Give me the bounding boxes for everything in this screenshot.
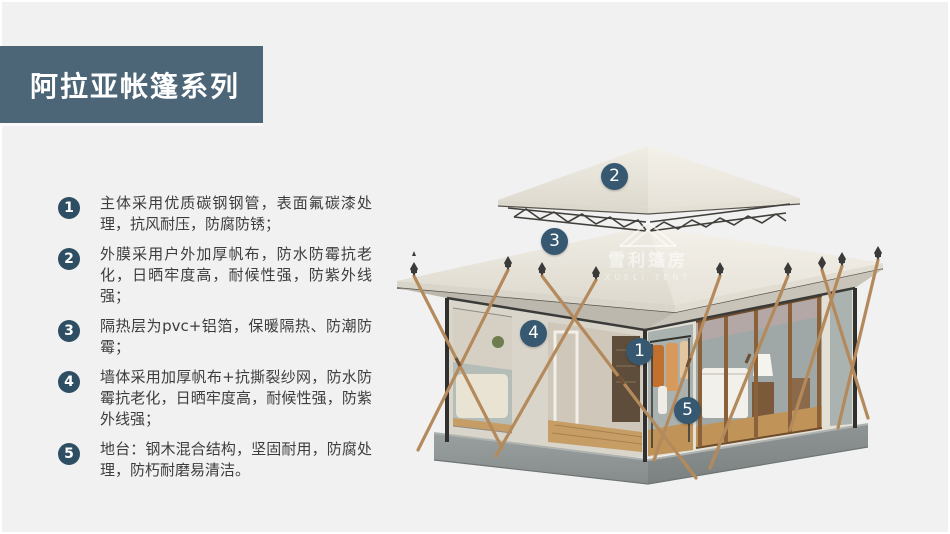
- tent-marker-5: 5: [674, 397, 701, 424]
- feature-list: 1 主体采用优质碳钢钢管，表面氟碳漆处理，抗风耐压，防腐防锈； 2 外膜采用户外…: [58, 193, 388, 490]
- list-item: 5 地台：钢木混合结构，坚固耐用，防腐处理，防朽耐磨易清洁。: [58, 439, 388, 481]
- tent-render: 雪利篷房 XUELI TENT: [390, 130, 950, 530]
- list-item: 2 外膜采用户外加厚帆布，防水防霉抗老化，日晒牢度高，耐候性强，防紫外线强；: [58, 244, 388, 307]
- feature-text: 墙体采用加厚帆布+抗撕裂纱网，防水防霉抗老化，日晒牢度高，耐候性强，防紫外线强；: [100, 367, 372, 430]
- number-badge: 1: [58, 197, 80, 219]
- upper-roof: [498, 146, 800, 214]
- tent-marker-3: 3: [541, 228, 568, 255]
- tent-marker-1: 1: [626, 338, 653, 365]
- feature-text: 主体采用优质碳钢钢管，表面氟碳漆处理，抗风耐压，防腐防锈；: [100, 193, 372, 235]
- glass-doors: [696, 296, 822, 448]
- watermark-en: XUELI TENT: [605, 273, 692, 282]
- clothes-rack: [648, 324, 693, 456]
- watermark-cn: 雪利篷房: [608, 250, 688, 271]
- tent-marker-4: 4: [520, 320, 547, 347]
- feature-text: 外膜采用户外加厚帆布，防水防霉抗老化，日晒牢度高，耐候性强，防紫外线强；: [100, 244, 372, 307]
- number-badge: 4: [58, 371, 80, 393]
- feature-text: 隔热层为pvc+铝箔，保暖隔热、防潮防霉；: [100, 316, 372, 358]
- list-item: 1 主体采用优质碳钢钢管，表面氟碳漆处理，抗风耐压，防腐防锈；: [58, 193, 388, 235]
- list-item: 3 隔热层为pvc+铝箔，保暖隔热、防潮防霉；: [58, 316, 388, 358]
- slide-background: 阿拉亚帐篷系列 1 主体采用优质碳钢钢管，表面氟碳漆处理，抗风耐压，防腐防锈； …: [0, 0, 950, 534]
- number-badge: 2: [58, 248, 80, 270]
- number-badge: 3: [58, 320, 80, 342]
- title-banner: 阿拉亚帐篷系列: [0, 46, 263, 126]
- number-badge: 5: [58, 443, 80, 465]
- tent-illustration: 雪利篷房 XUELI TENT 1 2 3 4 5: [390, 130, 950, 530]
- feature-text: 地台：钢木混合结构，坚固耐用，防腐处理，防朽耐磨易清洁。: [100, 439, 372, 481]
- page-title: 阿拉亚帐篷系列: [30, 65, 240, 105]
- tent-marker-2: 2: [601, 163, 628, 190]
- list-item: 4 墙体采用加厚帆布+抗撕裂纱网，防水防霉抗老化，日晒牢度高，耐候性强，防紫外线…: [58, 367, 388, 430]
